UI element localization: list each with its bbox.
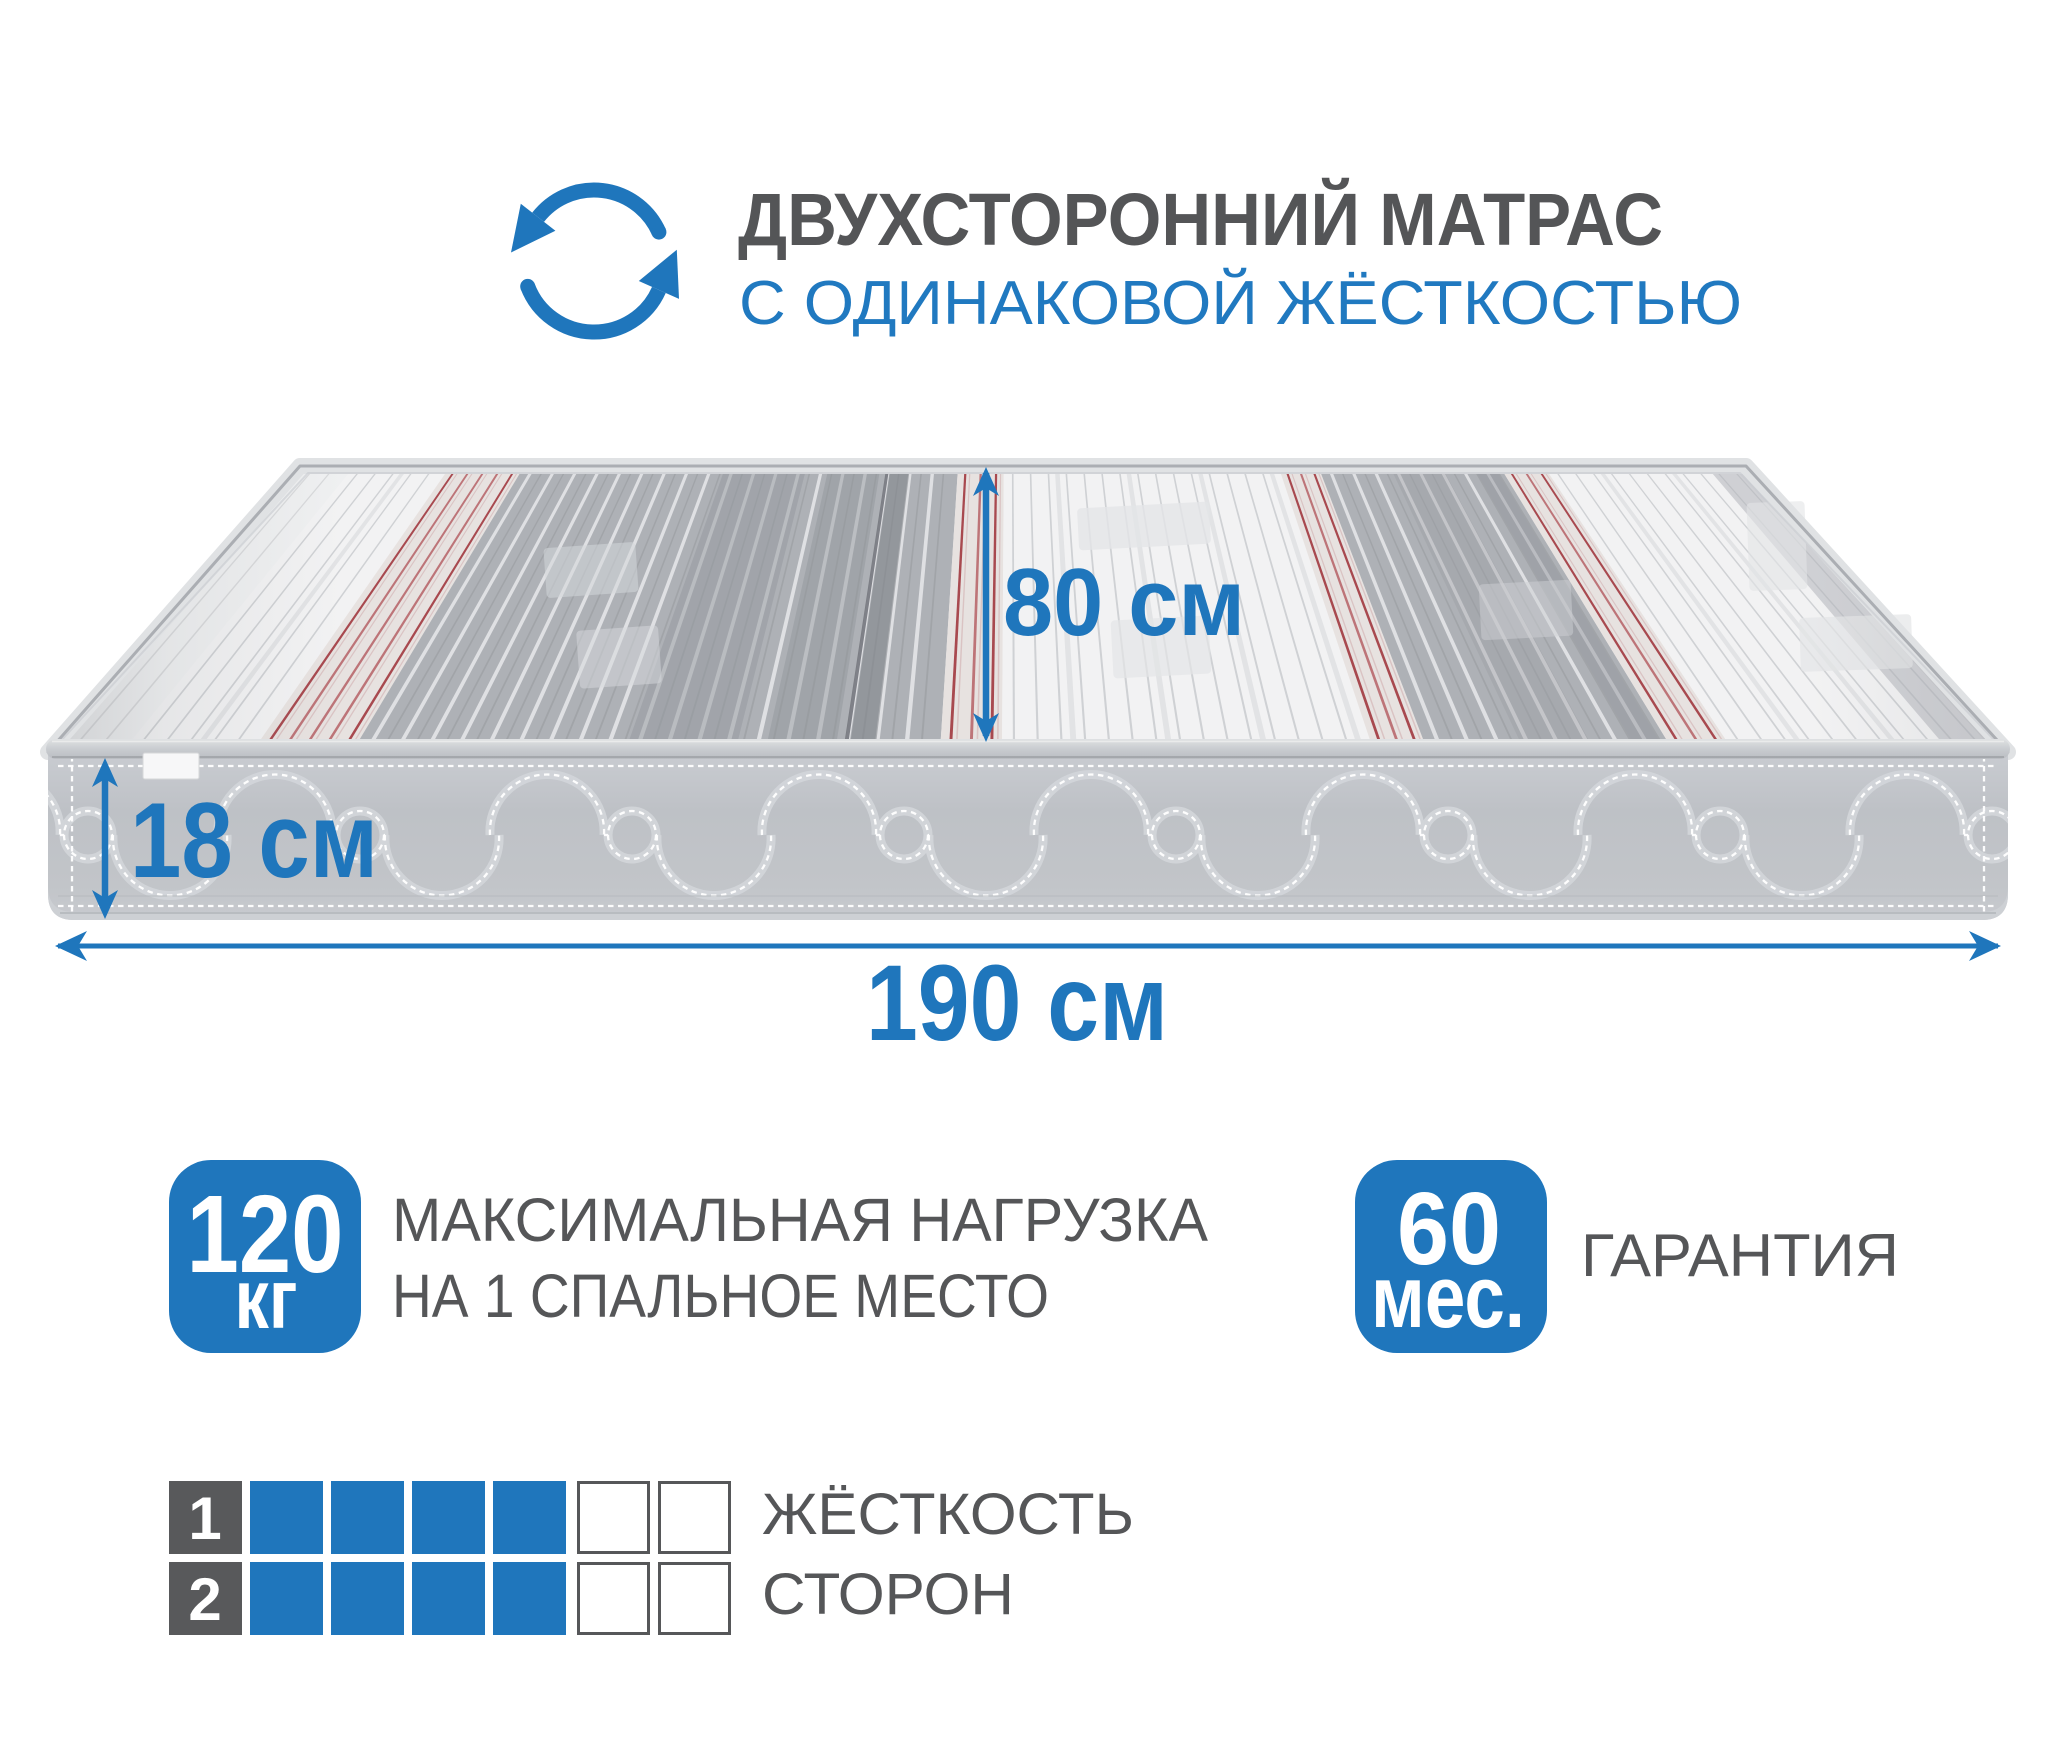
svg-text:НА 1 СПАЛЬНОЕ МЕСТО: НА 1 СПАЛЬНОЕ МЕСТО — [392, 1262, 1049, 1330]
svg-text:ГАРАНТИЯ: ГАРАНТИЯ — [1581, 1222, 1899, 1289]
svg-text:МАКСИМАЛЬНАЯ НАГРУЗКА: МАКСИМАЛЬНАЯ НАГРУЗКА — [392, 1186, 1208, 1254]
svg-text:80 см: 80 см — [1003, 549, 1245, 656]
svg-text:2: 2 — [188, 1566, 221, 1633]
svg-text:СТОРОН: СТОРОН — [762, 1562, 1014, 1627]
svg-text:190 см: 190 см — [866, 942, 1168, 1063]
svg-text:мес.: мес. — [1371, 1247, 1525, 1346]
svg-text:С ОДИНАКОВОЙ ЖЁСТКОСТЬЮ: С ОДИНАКОВОЙ ЖЁСТКОСТЬЮ — [739, 268, 1742, 338]
svg-text:18 см: 18 см — [130, 780, 378, 900]
svg-text:кг: кг — [235, 1252, 298, 1346]
svg-text:ЖЁСТКОСТЬ: ЖЁСТКОСТЬ — [762, 1482, 1134, 1547]
svg-text:1: 1 — [188, 1485, 221, 1552]
svg-text:ДВУХСТОРОННИЙ МАТРАС: ДВУХСТОРОННИЙ МАТРАС — [738, 177, 1663, 261]
